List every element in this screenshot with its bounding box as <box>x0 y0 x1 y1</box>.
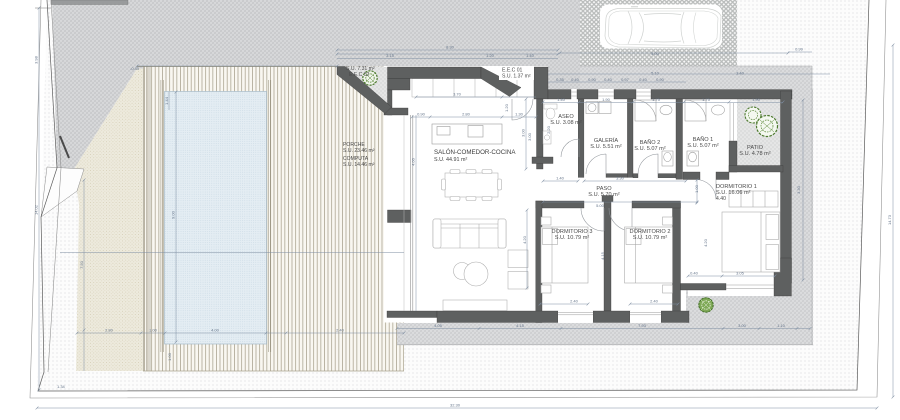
svg-text:S.U. 10.79 m²: S.U. 10.79 m² <box>633 235 668 241</box>
svg-text:1.30: 1.30 <box>515 112 524 117</box>
svg-text:0.35: 0.35 <box>556 77 565 82</box>
svg-text:1.20: 1.20 <box>504 103 509 112</box>
svg-text:1.34: 1.34 <box>57 384 66 389</box>
svg-text:0.90: 0.90 <box>417 112 426 117</box>
svg-text:7.50: 7.50 <box>79 260 84 269</box>
svg-text:0.90: 0.90 <box>656 77 665 82</box>
svg-text:1.40: 1.40 <box>556 176 565 181</box>
svg-text:S.U. 3.08 m²: S.U. 3.08 m² <box>550 120 582 126</box>
svg-text:4.05: 4.05 <box>434 323 443 328</box>
svg-text:4.15: 4.15 <box>516 323 525 328</box>
svg-text:3.30: 3.30 <box>616 176 625 181</box>
svg-text:S.U. 23.46 m²: S.U. 23.46 m² <box>343 148 375 154</box>
svg-text:0.40: 0.40 <box>604 77 613 82</box>
svg-text:3.00: 3.00 <box>738 323 747 328</box>
svg-text:3.00: 3.00 <box>527 132 532 141</box>
svg-text:3.30: 3.30 <box>796 185 801 194</box>
svg-text:0.40: 0.40 <box>639 77 648 82</box>
svg-text:S.U. 5.07 m²: S.U. 5.07 m² <box>687 143 719 149</box>
svg-text:1.00: 1.00 <box>149 328 158 333</box>
svg-text:2.40: 2.40 <box>650 299 659 304</box>
svg-text:4.00: 4.00 <box>211 328 220 333</box>
svg-text:2.40: 2.40 <box>570 299 579 304</box>
svg-text:E.E.C 02: E.E.C 02 <box>349 72 370 78</box>
svg-text:1.00: 1.00 <box>694 184 699 193</box>
svg-text:5.00: 5.00 <box>596 203 605 208</box>
svg-text:S.U. 5.70 m²: S.U. 5.70 m² <box>588 192 620 198</box>
svg-text:32.30: 32.30 <box>450 403 461 408</box>
svg-text:14.02: 14.02 <box>34 204 39 215</box>
svg-text:4.00: 4.00 <box>411 157 416 166</box>
svg-text:SALÓN-COMEDOR-COCINA: SALÓN-COMEDOR-COCINA <box>434 149 516 156</box>
svg-text:3.70: 3.70 <box>453 92 462 97</box>
svg-text:S.U. 1.37 m²: S.U. 1.37 m² <box>502 74 531 80</box>
svg-text:0.97: 0.97 <box>621 77 630 82</box>
svg-text:BAÑO 1: BAÑO 1 <box>693 136 714 143</box>
svg-text:1.44: 1.44 <box>164 96 169 105</box>
svg-text:1.10: 1.10 <box>777 323 786 328</box>
svg-text:S.U. 44.91 m²: S.U. 44.91 m² <box>434 157 467 163</box>
svg-text:-0.45: -0.45 <box>130 66 140 71</box>
svg-text:0.40: 0.40 <box>571 77 580 82</box>
svg-text:8.30: 8.30 <box>446 45 455 50</box>
svg-text:2.80: 2.80 <box>105 328 114 333</box>
svg-text:3.05: 3.05 <box>736 271 745 276</box>
svg-text:3.40: 3.40 <box>736 71 745 76</box>
svg-text:4.20: 4.20 <box>522 235 527 244</box>
svg-text:4.20: 4.20 <box>703 238 708 247</box>
svg-text:S.U. 4.78 m²: S.U. 4.78 m² <box>739 151 771 157</box>
svg-text:4.40: 4.40 <box>716 196 726 202</box>
svg-text:S.U. 5.07 m²: S.U. 5.07 m² <box>634 146 666 152</box>
svg-text:S.U. 14.46 m²: S.U. 14.46 m² <box>343 162 375 168</box>
svg-text:GALERÍA: GALERÍA <box>594 137 619 144</box>
svg-text:3.15: 3.15 <box>386 53 395 58</box>
svg-text:3.98: 3.98 <box>34 55 39 64</box>
svg-text:0.99: 0.99 <box>795 47 804 52</box>
svg-text:5.10: 5.10 <box>651 71 660 76</box>
svg-text:1.40: 1.40 <box>526 53 535 58</box>
svg-text:S.U. 10.79 m²: S.U. 10.79 m² <box>555 235 590 241</box>
svg-text:7.93: 7.93 <box>638 323 647 328</box>
svg-text:5.00: 5.00 <box>651 51 660 56</box>
svg-text:0.40: 0.40 <box>690 271 699 276</box>
svg-text:1.40: 1.40 <box>557 97 566 102</box>
svg-text:1.90: 1.90 <box>602 97 611 102</box>
svg-text:14.73: 14.73 <box>887 214 892 225</box>
svg-text:1.20: 1.20 <box>486 53 495 58</box>
svg-text:2.80: 2.80 <box>462 112 471 117</box>
svg-text:3.00: 3.00 <box>521 128 526 137</box>
svg-text:4.15: 4.15 <box>600 251 605 260</box>
svg-text:0.90: 0.90 <box>588 77 597 82</box>
svg-text:1.75: 1.75 <box>652 97 661 102</box>
svg-text:BAÑO 2: BAÑO 2 <box>640 139 661 146</box>
svg-text:S.U. 5.51 m²: S.U. 5.51 m² <box>590 144 622 150</box>
svg-text:1.00: 1.00 <box>167 352 172 361</box>
svg-text:1.90: 1.90 <box>752 97 761 102</box>
svg-text:1.75: 1.75 <box>702 97 711 102</box>
svg-text:2.20: 2.20 <box>546 125 551 134</box>
svg-text:9.00: 9.00 <box>171 210 176 219</box>
svg-text:2.40: 2.40 <box>336 328 345 333</box>
